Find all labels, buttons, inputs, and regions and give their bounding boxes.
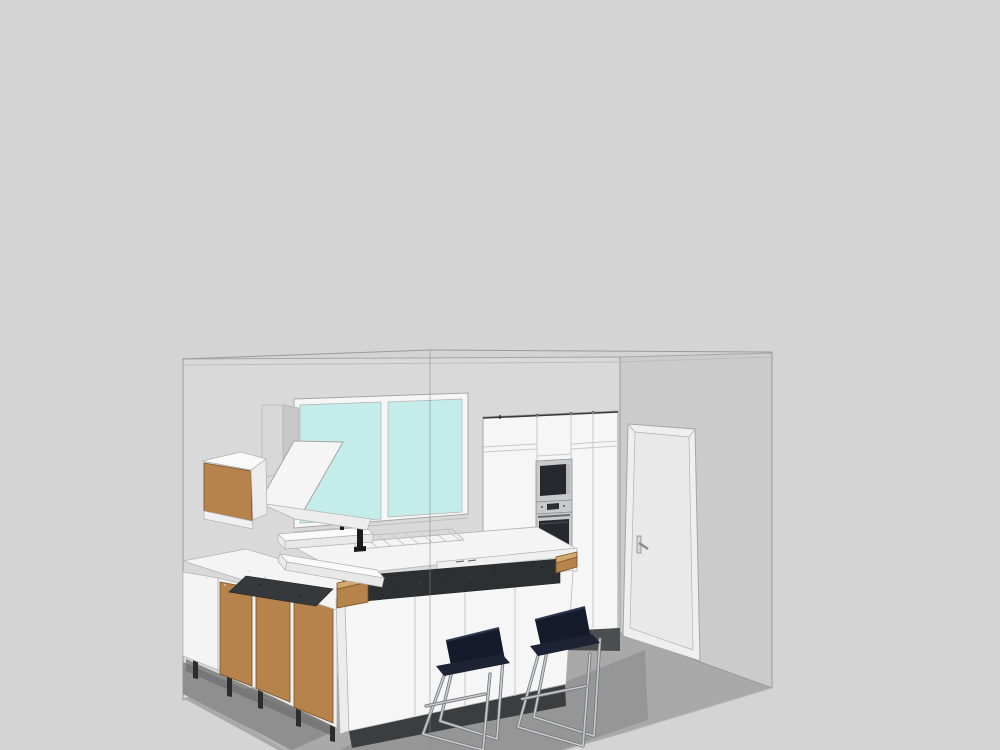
cooktop-texture <box>269 595 271 597</box>
window-glass-right <box>388 399 462 517</box>
counter-speckle <box>215 571 217 573</box>
counter-speckle <box>224 584 226 586</box>
bar-texture <box>394 588 396 590</box>
control-knob <box>541 506 543 508</box>
kitchen-3d-render <box>0 0 1000 750</box>
faucet-base <box>354 546 366 552</box>
microwave-glass <box>540 464 566 496</box>
counter-speckle <box>264 576 266 578</box>
bar-texture <box>469 576 471 578</box>
bar-texture <box>541 566 543 568</box>
door <box>623 424 700 661</box>
wood-cabinet-door <box>220 582 252 686</box>
counter-speckle <box>231 565 233 567</box>
cooktop-texture <box>259 584 261 586</box>
wall-cabinet-side <box>251 459 267 520</box>
wood-cabinet-door <box>294 596 333 723</box>
microwave-buttons <box>566 464 570 494</box>
bar-texture <box>519 569 521 571</box>
counter-speckle <box>205 577 207 579</box>
bar-texture <box>494 572 496 574</box>
cooktop-texture <box>279 589 281 591</box>
bar-texture <box>444 579 446 581</box>
control-display <box>547 503 559 510</box>
counter-speckle <box>199 567 201 569</box>
wood-cabinet-door <box>256 589 290 702</box>
bar-texture <box>419 582 421 584</box>
counter-speckle <box>248 570 250 572</box>
kitchen-3d-viewport <box>0 0 1000 750</box>
cooktop-texture <box>299 595 301 597</box>
control-knob <box>563 505 565 507</box>
cabinet-end-panel <box>183 572 218 670</box>
